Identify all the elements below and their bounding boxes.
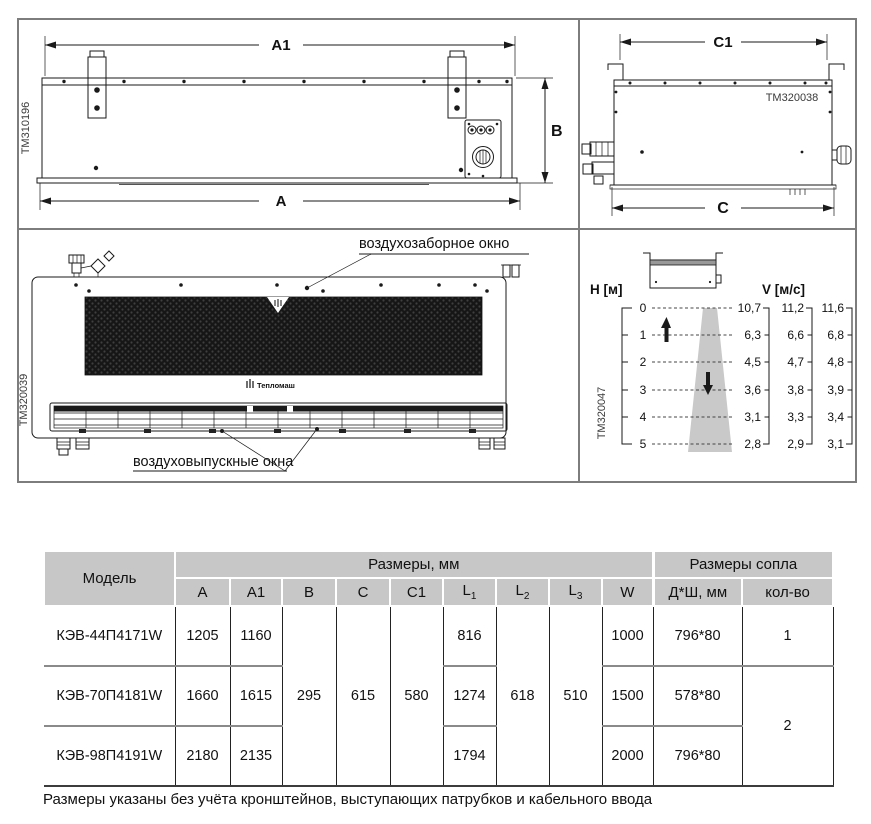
svg-text:2,8: 2,8 (744, 437, 761, 451)
svg-text:3,1: 3,1 (744, 410, 761, 424)
height-scale: 0 1 2 3 4 5 (622, 301, 647, 451)
svg-text:3,6: 3,6 (744, 383, 761, 397)
drawing-code: TM310196 (20, 102, 32, 155)
screw-dots (74, 283, 489, 293)
outlet-grille (50, 403, 507, 433)
cell-count: 1 (742, 606, 833, 666)
cell-w: 2000 (602, 726, 653, 786)
dimensions-table: Модель Размеры, мм Размеры сопла A A1 B … (43, 550, 834, 787)
cell-l2: 618 (496, 606, 549, 786)
h-axis-label: H [м] (590, 282, 622, 297)
svg-text:10,7: 10,7 (738, 301, 762, 315)
col-nozzle-size: Д*Ш, мм (653, 578, 742, 606)
svg-text:1: 1 (640, 328, 647, 342)
svg-text:воздухозаборное окно: воздухозаборное окно (359, 236, 509, 252)
cell-c1: 580 (390, 606, 443, 786)
svg-text:4,7: 4,7 (787, 355, 804, 369)
svg-text:0: 0 (640, 301, 647, 315)
col-l1: L1 (443, 578, 496, 606)
cell-nozzle: 796*80 (653, 606, 742, 666)
footnote: Размеры указаны без учёта кронштейнов, в… (43, 791, 652, 808)
svg-text:C1: C1 (713, 34, 732, 51)
cell-a: 1660 (175, 666, 230, 726)
cell-nozzle: 578*80 (653, 666, 742, 726)
v-axis-label: V [м/с] (762, 282, 805, 297)
svg-text:2,9: 2,9 (787, 437, 804, 451)
up-arrow (661, 317, 671, 342)
header-group-dimensions: Размеры, мм (175, 551, 653, 578)
svg-text:6,8: 6,8 (827, 328, 844, 342)
cell-w: 1500 (602, 666, 653, 726)
col-b: B (282, 578, 336, 606)
cell-a1: 1160 (230, 606, 282, 666)
brand-logo: Тепломаш (247, 379, 295, 390)
airflow-chart: H [м] V [м/с] 0 1 2 3 4 5 10,7 6, (580, 230, 855, 479)
cell-a: 2180 (175, 726, 230, 786)
side-view-drawing: C1 (580, 20, 855, 228)
col-a1: A1 (230, 578, 282, 606)
dimension-c1: C1 (620, 34, 827, 60)
col-c1: C1 (390, 578, 443, 606)
svg-text:4: 4 (640, 410, 647, 424)
svg-text:2: 2 (640, 355, 647, 369)
cell-c: 615 (336, 606, 390, 786)
velocity-scale-2: 11,2 6,6 4,7 3,8 3,3 2,9 (782, 301, 812, 451)
drawing-code: TM320038 (766, 92, 819, 104)
cell-w: 1000 (602, 606, 653, 666)
svg-text:A1: A1 (271, 37, 290, 54)
svg-text:11,6: 11,6 (822, 301, 845, 315)
intake-grille (85, 297, 482, 375)
svg-text:3: 3 (640, 383, 647, 397)
drawing-frame: A1 (17, 18, 857, 483)
svg-text:3,3: 3,3 (787, 410, 804, 424)
top-right-clip (501, 265, 521, 277)
col-w: W (602, 578, 653, 606)
cell-l1: 816 (443, 606, 496, 666)
col-a: A (175, 578, 230, 606)
col-nozzle-count: кол-во (742, 578, 833, 606)
cell-a1: 1615 (230, 666, 282, 726)
cell-l1: 1274 (443, 666, 496, 726)
cell-model: КЭВ-98П4191W (44, 726, 175, 786)
svg-text:4,8: 4,8 (827, 355, 844, 369)
dimension-a1: A1 (45, 36, 515, 76)
col-l3: L3 (549, 578, 602, 606)
cell-model: КЭВ-44П4171W (44, 606, 175, 666)
svg-text:A: A (276, 193, 287, 210)
cell-l3: 510 (549, 606, 602, 786)
unit-body-side (608, 64, 844, 195)
cell-a: 1205 (175, 606, 230, 666)
unit-icon (643, 253, 723, 288)
svg-text:3,4: 3,4 (827, 410, 844, 424)
svg-text:C: C (717, 200, 729, 217)
cell-model: КЭВ-70П4181W (44, 666, 175, 726)
svg-text:3,8: 3,8 (787, 383, 804, 397)
water-pipes (582, 142, 614, 184)
svg-text:4,5: 4,5 (744, 355, 761, 369)
cable-gland (832, 146, 851, 164)
velocity-scale-1: 10,7 6,3 4,5 3,6 3,1 2,8 (738, 301, 769, 451)
cell-l1: 1794 (443, 726, 496, 786)
col-c: C (336, 578, 390, 606)
unit-body-rear (37, 78, 517, 185)
velocity-scale-3: 11,6 6,8 4,8 3,9 3,4 3,1 (822, 301, 852, 451)
intake-callout: воздухозаборное окно (305, 236, 529, 290)
drawing-code: TM320047 (596, 387, 608, 440)
svg-text:5: 5 (640, 437, 647, 451)
air-vent-valve (69, 251, 114, 277)
svg-text:Тепломаш: Тепломаш (257, 381, 295, 390)
cell-b: 295 (282, 606, 336, 786)
screw-dots (62, 80, 508, 172)
svg-text:3,9: 3,9 (827, 383, 844, 397)
cell-nozzle: 796*80 (653, 726, 742, 786)
dimension-c: C (612, 187, 834, 217)
svg-text:6,3: 6,3 (744, 328, 761, 342)
header-model: Модель (44, 551, 175, 606)
rear-view-drawing: A1 (19, 20, 578, 228)
drawing-code: TM320039 (19, 374, 30, 427)
svg-text:B: B (551, 123, 563, 140)
svg-text:воздуховыпускные окна: воздуховыпускные окна (133, 454, 294, 470)
svg-text:3,1: 3,1 (827, 437, 844, 451)
cell-a1: 2135 (230, 726, 282, 786)
front-view-drawing: Тепломаш воздухозаборное окно (19, 230, 578, 479)
header-group-nozzle: Размеры сопла (653, 551, 833, 578)
outlet-callout: воздуховыпускные окна (133, 427, 319, 471)
svg-text:11,2: 11,2 (782, 301, 805, 315)
dimension-a: A (40, 183, 520, 210)
dimension-b: B (516, 78, 563, 183)
svg-text:6,6: 6,6 (787, 328, 804, 342)
table-row: КЭВ-44П4171W 1205 1160 295 615 580 816 6… (44, 606, 833, 666)
col-l2: L2 (496, 578, 549, 606)
cell-count: 2 (742, 666, 833, 786)
electrical-box (465, 120, 501, 178)
bottom-feet (57, 438, 505, 455)
